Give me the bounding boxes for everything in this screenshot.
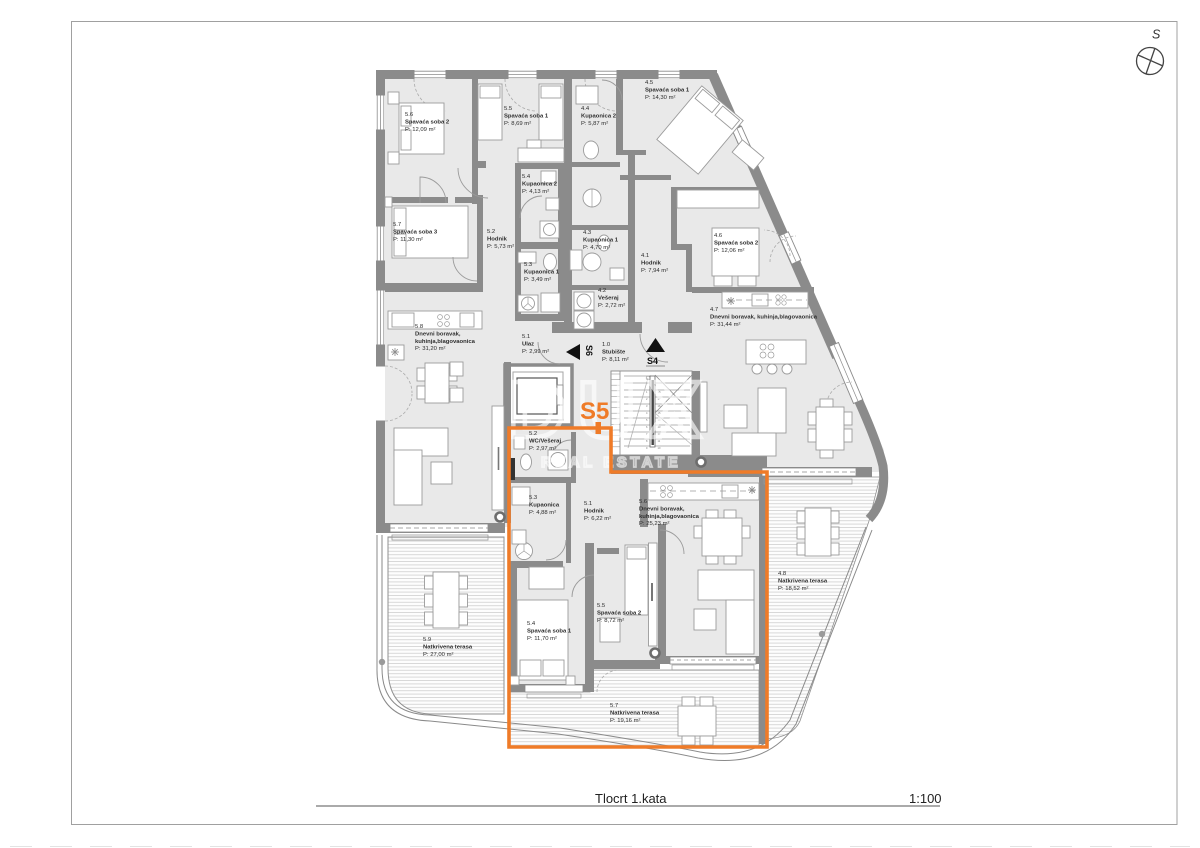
svg-text:4.1: 4.1 [641, 253, 649, 259]
svg-text:5.6: 5.6 [405, 112, 414, 118]
svg-text:5.9: 5.9 [423, 637, 431, 643]
svg-text:kuhinja,blagovaonica: kuhinja,blagovaonica [415, 339, 476, 345]
svg-text:4.4: 4.4 [581, 106, 590, 112]
svg-text:Ulaz: Ulaz [522, 341, 534, 347]
svg-text:P: 2,72 m²: P: 2,72 m² [598, 303, 625, 309]
svg-text:Stubište: Stubište [602, 349, 626, 355]
svg-text:Dnevni boravak,: Dnevni boravak, [639, 506, 685, 512]
svg-text:Vešeraj: Vešeraj [598, 295, 619, 301]
svg-text:5.6: 5.6 [639, 499, 648, 505]
svg-text:Tlocrt 1.kata: Tlocrt 1.kata [595, 791, 667, 806]
svg-text:Spavaća soba 2: Spavaća soba 2 [597, 610, 642, 616]
svg-text:P: 4,88 m²: P: 4,88 m² [529, 510, 556, 516]
svg-text:S: S [1152, 28, 1161, 42]
svg-text:Hodnik: Hodnik [641, 260, 662, 266]
svg-text:Spavaća soba 1: Spavaća soba 1 [527, 628, 572, 634]
svg-text:4.7: 4.7 [710, 307, 718, 313]
svg-text:P: 2,97 m²: P: 2,97 m² [529, 446, 556, 452]
svg-text:P: 5,73 m²: P: 5,73 m² [487, 244, 514, 250]
svg-text:S5: S5 [580, 398, 609, 425]
svg-text:4.8: 4.8 [778, 571, 787, 577]
svg-text:P: 31,20 m²: P: 31,20 m² [415, 346, 445, 352]
svg-text:P: 8,69 m²: P: 8,69 m² [504, 121, 531, 127]
svg-text:Natkrivena terasa: Natkrivena terasa [610, 710, 660, 716]
svg-text:P: 12,09 m²: P: 12,09 m² [405, 127, 435, 133]
svg-text:Natkrivena terasa: Natkrivena terasa [423, 644, 473, 650]
svg-text:S4: S4 [647, 356, 658, 366]
svg-text:P: 31,44 m²: P: 31,44 m² [710, 322, 740, 328]
svg-text:Kupaonica 1: Kupaonica 1 [524, 269, 560, 275]
svg-text:1:100: 1:100 [909, 791, 942, 806]
svg-text:P: 27,00 m²: P: 27,00 m² [423, 652, 453, 658]
svg-text:Spavaća soba 3: Spavaća soba 3 [393, 229, 438, 235]
svg-text:Kupaonica 2: Kupaonica 2 [581, 113, 617, 119]
svg-text:Dnevni boravak, kuhinja,blagov: Dnevni boravak, kuhinja,blagovaonica [710, 314, 818, 320]
svg-text:4.6: 4.6 [714, 233, 723, 239]
svg-text:5.5: 5.5 [597, 603, 606, 609]
svg-text:1.0: 1.0 [602, 342, 611, 348]
svg-text:5.2: 5.2 [487, 229, 495, 235]
svg-text:4.5: 4.5 [645, 80, 654, 86]
svg-text:5.5: 5.5 [504, 106, 513, 112]
svg-text:P: 19,16 m²: P: 19,16 m² [610, 718, 640, 724]
svg-text:5.1: 5.1 [522, 334, 530, 340]
svg-text:4.2: 4.2 [598, 288, 606, 294]
svg-text:S6: S6 [584, 345, 594, 356]
svg-text:5.7: 5.7 [393, 222, 401, 228]
svg-text:P: 3,49 m²: P: 3,49 m² [524, 277, 551, 283]
svg-text:5.4: 5.4 [522, 174, 531, 180]
svg-text:kuhinja,blagovaonica: kuhinja,blagovaonica [639, 514, 700, 520]
svg-text:Spavaća soba 2: Spavaća soba 2 [405, 119, 450, 125]
svg-text:5.3: 5.3 [529, 495, 538, 501]
svg-text:Hodnik: Hodnik [487, 236, 508, 242]
svg-text:5.2: 5.2 [529, 431, 537, 437]
svg-text:P: 2,99 m²: P: 2,99 m² [522, 349, 549, 355]
svg-text:5.1: 5.1 [584, 501, 592, 507]
svg-text:Natkrivena terasa: Natkrivena terasa [778, 578, 828, 584]
svg-text:P: 6,22 m²: P: 6,22 m² [584, 516, 611, 522]
svg-text:WC/Vešeraj: WC/Vešeraj [529, 438, 561, 444]
svg-text:Dnevni boravak,: Dnevni boravak, [415, 331, 461, 337]
svg-text:Spavaća soba 2: Spavaća soba 2 [714, 240, 759, 246]
svg-text:5.3: 5.3 [524, 262, 533, 268]
svg-text:P: 14,30 m²: P: 14,30 m² [645, 95, 675, 101]
svg-text:Spavaća soba 1: Spavaća soba 1 [645, 87, 690, 93]
svg-text:P: 25,23 m²: P: 25,23 m² [639, 521, 669, 527]
svg-text:P: 8,11 m²: P: 8,11 m² [602, 357, 629, 363]
svg-text:P: 7,94 m²: P: 7,94 m² [641, 268, 668, 274]
svg-text:Kupaonica 1: Kupaonica 1 [583, 237, 619, 243]
svg-text:4.3: 4.3 [583, 230, 592, 236]
svg-text:P: 8,72 m²: P: 8,72 m² [597, 618, 624, 624]
svg-text:P: 11,30 m²: P: 11,30 m² [393, 237, 423, 243]
svg-text:5.4: 5.4 [527, 621, 536, 627]
svg-text:P: 12,06 m²: P: 12,06 m² [714, 248, 744, 254]
svg-text:Hodnik: Hodnik [584, 508, 605, 514]
svg-text:P: 5,87 m²: P: 5,87 m² [581, 121, 608, 127]
svg-text:5.7: 5.7 [610, 703, 618, 709]
svg-text:Spavaća soba 1: Spavaća soba 1 [504, 113, 549, 119]
svg-text:P: 4,13 m²: P: 4,13 m² [522, 189, 549, 195]
svg-text:5.8: 5.8 [415, 324, 424, 330]
svg-text:P: 11,70 m²: P: 11,70 m² [527, 636, 557, 642]
svg-text:P: 18,52 m²: P: 18,52 m² [778, 586, 808, 592]
svg-text:Kupaonica 2: Kupaonica 2 [522, 181, 558, 187]
svg-text:Kupaonica: Kupaonica [529, 502, 560, 508]
svg-text:P: 4,70 m²: P: 4,70 m² [583, 245, 610, 251]
